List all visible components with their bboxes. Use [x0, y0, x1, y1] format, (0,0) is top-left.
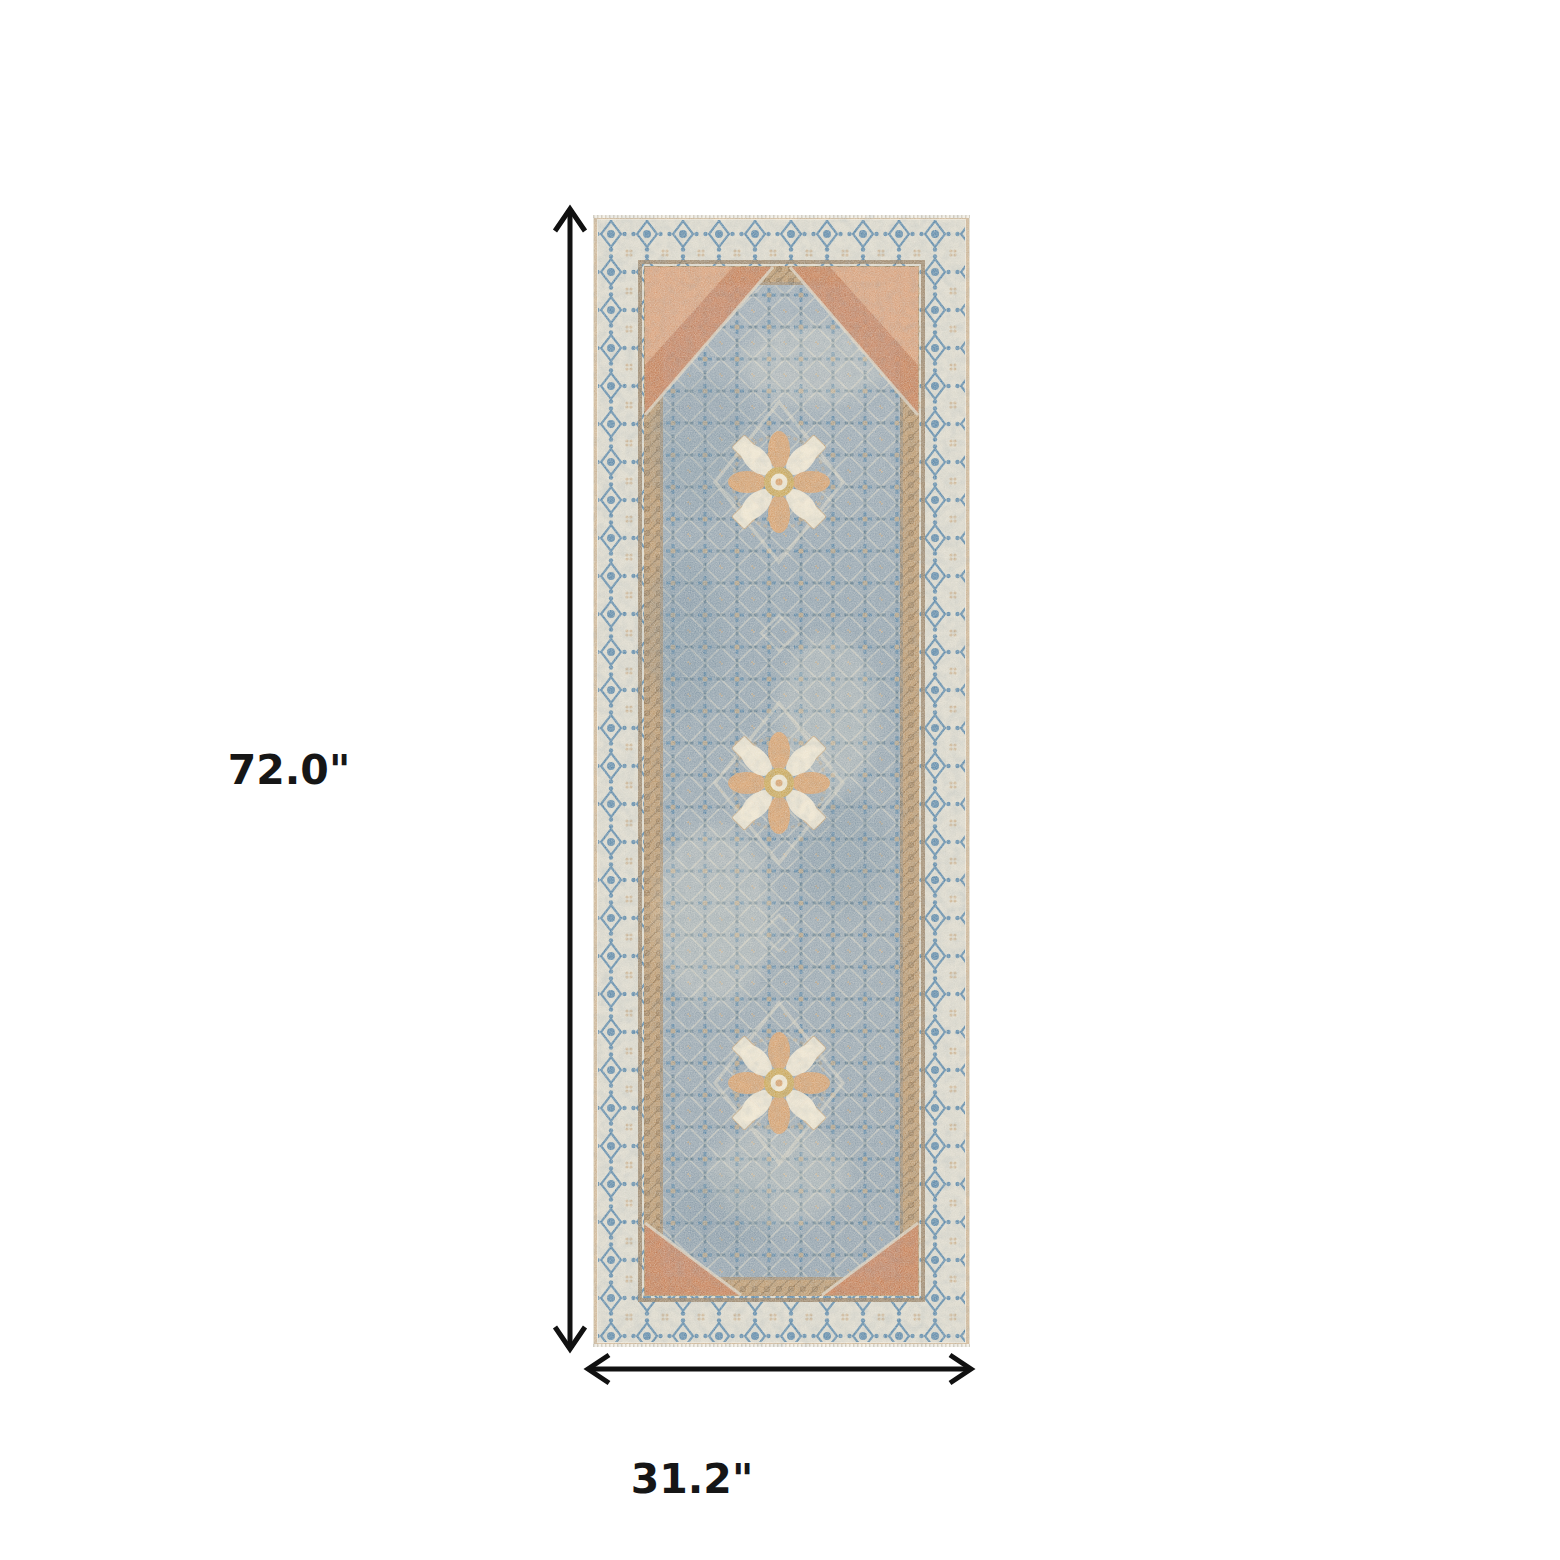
width-dimension-label: 31.2": [631, 1455, 754, 1503]
product-dimension-image: 72.0" 31.2": [0, 0, 1560, 1560]
width-arrow: [588, 1355, 971, 1383]
height-dimension-label: 72.0": [228, 746, 351, 794]
height-arrow: [555, 209, 585, 1349]
